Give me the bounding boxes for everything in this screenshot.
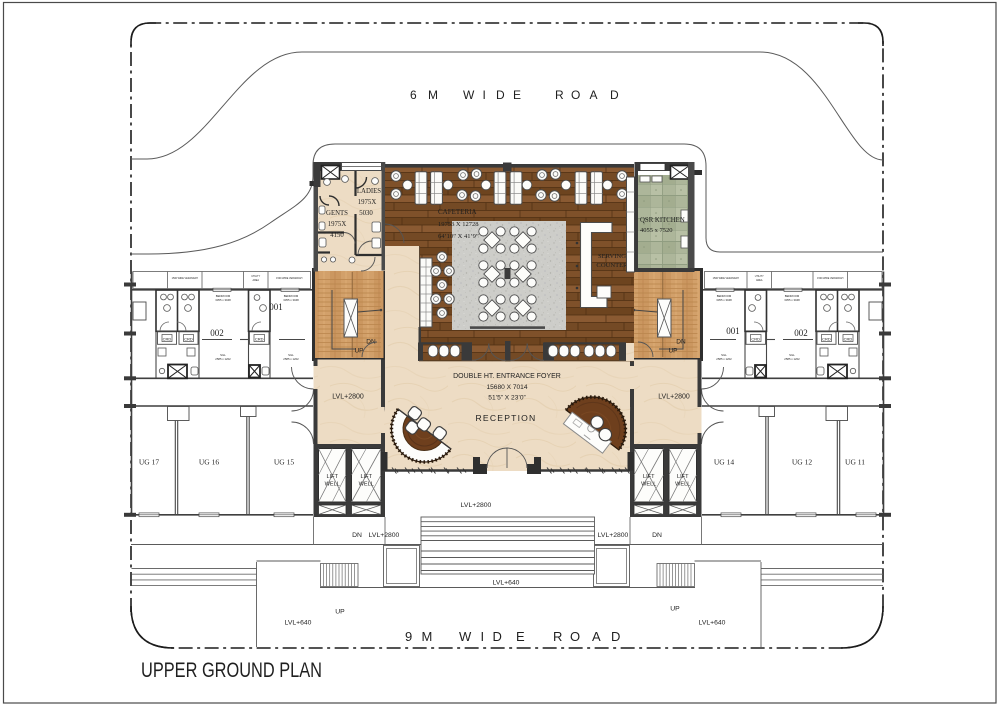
svg-text:2585 x 1202: 2585 x 1202 [283,357,299,361]
svg-text:WELL: WELL [359,482,374,488]
svg-text:RECEPTION: RECEPTION [476,413,537,423]
svg-text:DN: DN [652,532,662,539]
svg-text:LVL+2800: LVL+2800 [658,394,690,401]
svg-text:LIFT: LIFT [361,474,373,480]
svg-text:1500 WIDE VERANDAH: 1500 WIDE VERANDAH [713,277,739,280]
svg-text:UG 14: UG 14 [714,458,734,467]
svg-text:QSR KITCHEN: QSR KITCHEN [640,217,685,224]
svg-text:3355 x 3048: 3355 x 3048 [283,298,299,302]
svg-text:3355 x 3048: 3355 x 3048 [784,298,800,302]
svg-text:1975X: 1975X [328,221,347,228]
svg-text:LIFT: LIFT [643,474,655,480]
svg-text:LVL+2800: LVL+2800 [369,532,400,539]
svg-text:4055 x 7520: 4055 x 7520 [640,227,673,234]
svg-text:2585 x 1202: 2585 x 1202 [784,357,800,361]
svg-text:1975X: 1975X [358,199,377,206]
svg-text:5030: 5030 [359,210,373,217]
svg-text:LVL+2800: LVL+2800 [461,502,492,509]
svg-text:WELL: WELL [641,482,656,488]
svg-text:COUNTER: COUNTER [596,262,628,269]
svg-text:UG 17: UG 17 [139,458,159,467]
svg-text:UTILITY: UTILITY [251,275,260,278]
svg-text:001: 001 [269,302,283,312]
svg-text:4150: 4150 [330,232,344,239]
svg-text:WELL: WELL [675,482,690,488]
svg-text:2585 x 1202: 2585 x 1202 [716,357,732,361]
svg-text:51’5” X 23’0”: 51’5” X 23’0” [488,395,525,402]
svg-text:CRD: CRD [163,337,172,342]
svg-text:001: 001 [726,326,740,336]
svg-text:002: 002 [210,328,224,338]
svg-text:15680 X 7014: 15680 X 7014 [486,384,527,391]
svg-text:CRD: CRD [751,337,760,342]
svg-text:CRD: CRD [822,337,831,342]
svg-text:1500 WIDE VERANDAH: 1500 WIDE VERANDAH [276,277,302,280]
svg-text:LIFT: LIFT [327,474,339,480]
svg-text:DOUBLE HT. ENTRANCE FOYER: DOUBLE HT. ENTRANCE FOYER [453,373,561,380]
svg-text:GENTS: GENTS [326,210,348,217]
svg-text:SERVING: SERVING [598,253,626,260]
svg-text:CRD: CRD [844,337,853,342]
svg-text:CAFETERIA: CAFETERIA [438,208,477,216]
svg-text:LVL+640: LVL+640 [285,620,312,627]
svg-text:3355 x 3048: 3355 x 3048 [215,298,231,302]
svg-text:UP: UP [668,348,677,355]
svg-text:WELL: WELL [325,482,340,488]
svg-text:LADIES: LADIES [357,188,381,195]
svg-text:1500 WIDE VERANDAH: 1500 WIDE VERANDAH [817,277,843,280]
svg-text:LVL+2800: LVL+2800 [332,394,364,401]
svg-text:19753 X 12728: 19753 X 12728 [438,221,478,228]
svg-text:UG 16: UG 16 [199,458,219,467]
svg-text:AREA: AREA [756,279,763,282]
svg-text:002: 002 [794,328,808,338]
svg-text:LVL+640: LVL+640 [699,620,726,627]
svg-text:LVL+640: LVL+640 [493,580,520,587]
svg-text:UPPER GROUND PLAN: UPPER GROUND PLAN [141,658,322,682]
svg-text:1500 WIDE VERANDAH: 1500 WIDE VERANDAH [172,277,198,280]
svg-text:LIFT: LIFT [677,474,689,480]
svg-text:AREA: AREA [252,279,259,282]
svg-text:UG 15: UG 15 [274,458,294,467]
svg-text:3355 x 3048: 3355 x 3048 [716,298,732,302]
svg-text:LVL+2800: LVL+2800 [598,532,629,539]
svg-text:UTILITY: UTILITY [755,275,764,278]
svg-text:2585 x 1202: 2585 x 1202 [215,357,231,361]
svg-text:CRD: CRD [184,337,193,342]
svg-text:DN: DN [676,339,686,346]
svg-text:UG 11: UG 11 [845,458,865,467]
svg-text:UP: UP [335,609,345,616]
svg-text:UG 12: UG 12 [792,458,812,467]
svg-text:DN: DN [352,532,362,539]
svg-text:64’10” X 41’9”: 64’10” X 41’9” [438,233,479,240]
svg-text:CRD: CRD [255,337,264,342]
svg-text:UP: UP [670,606,680,613]
